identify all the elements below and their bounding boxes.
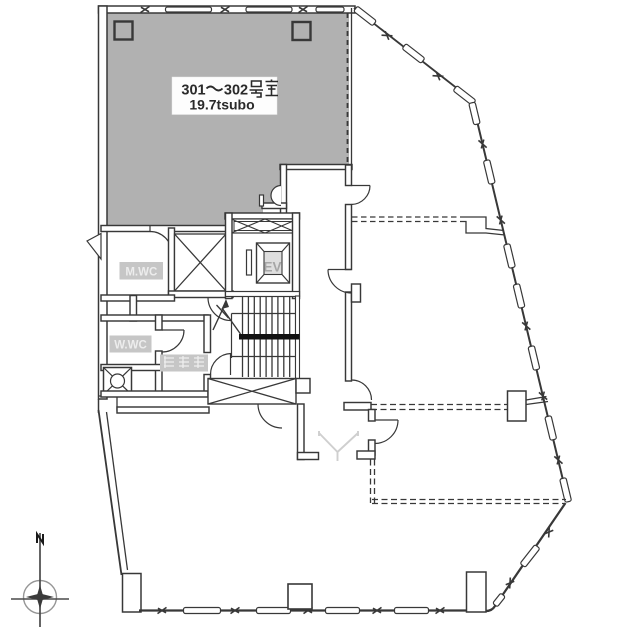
svg-text:W.WC: W.WC	[114, 340, 147, 352]
svg-text:EV: EV	[263, 260, 281, 275]
svg-text:19.7tsubo: 19.7tsubo	[189, 97, 254, 113]
svg-text:M.WC: M.WC	[125, 267, 157, 279]
